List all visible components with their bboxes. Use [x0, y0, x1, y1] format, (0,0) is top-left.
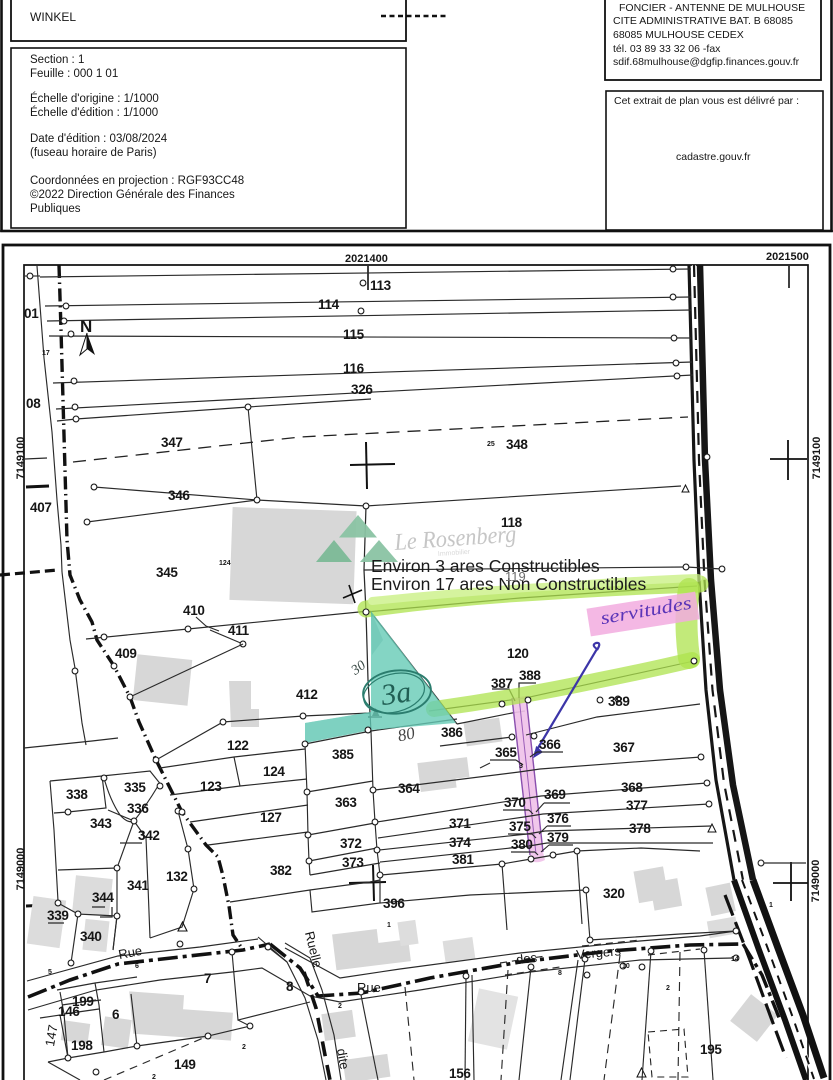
svg-text:6: 6: [112, 1007, 120, 1022]
svg-text:381: 381: [452, 852, 474, 867]
svg-text:8: 8: [558, 970, 562, 977]
svg-text:341: 341: [127, 878, 149, 893]
svg-text:376: 376: [547, 811, 569, 826]
svg-text:335: 335: [124, 780, 146, 795]
svg-text:115: 115: [343, 327, 365, 342]
svg-text:tél. 03 89 33 32 06 -fax: tél. 03 89 33 32 06 -fax: [613, 43, 721, 55]
svg-text:348: 348: [506, 437, 528, 452]
svg-text:7149100: 7149100: [811, 437, 823, 480]
svg-text:118: 118: [501, 515, 523, 530]
svg-text:CITE ADMINISTRATIVE BAT. B 6: CITE ADMINISTRATIVE BAT. B 68085: [613, 15, 793, 27]
svg-text:336: 336: [127, 801, 149, 816]
svg-text:Échelle d'édition : 1/1000: Échelle d'édition : 1/1000: [30, 106, 158, 119]
svg-text:des: des: [515, 950, 538, 968]
svg-text:364: 364: [398, 781, 420, 796]
svg-text:396: 396: [383, 896, 405, 911]
svg-text:25: 25: [487, 441, 495, 448]
svg-text:369: 369: [544, 787, 566, 802]
svg-text:2: 2: [666, 985, 670, 992]
svg-text:387: 387: [491, 676, 513, 691]
svg-text:116: 116: [343, 361, 365, 376]
svg-text:124: 124: [263, 764, 285, 779]
svg-text:339: 339: [47, 908, 69, 923]
svg-text:198: 198: [71, 1038, 93, 1053]
svg-text:342: 342: [138, 828, 160, 843]
svg-text:N: N: [80, 317, 92, 336]
svg-text:388: 388: [519, 668, 541, 683]
svg-text:119: 119: [505, 569, 526, 584]
svg-text:2021500: 2021500: [766, 251, 809, 263]
svg-text:Cet extrait de plan vous est d: Cet extrait de plan vous est délivré par…: [614, 95, 799, 107]
svg-text:17: 17: [42, 350, 50, 357]
svg-text:373: 373: [342, 855, 364, 870]
svg-text:374: 374: [449, 835, 471, 850]
svg-text:372: 372: [340, 836, 362, 851]
svg-text:340: 340: [80, 929, 102, 944]
svg-text:326: 326: [351, 382, 373, 397]
svg-text:368: 368: [621, 780, 643, 795]
svg-text:1: 1: [769, 902, 773, 909]
svg-text:379: 379: [547, 830, 569, 845]
svg-text:367: 367: [613, 740, 635, 755]
svg-text:407: 407: [30, 500, 52, 515]
svg-text:2: 2: [242, 1044, 246, 1051]
svg-text:3: 3: [519, 763, 523, 770]
svg-text:320: 320: [603, 886, 625, 901]
svg-text:14: 14: [731, 956, 739, 963]
svg-text:cadastre.gouv.fr: cadastre.gouv.fr: [676, 151, 751, 163]
svg-text:08: 08: [26, 396, 41, 411]
svg-text:389: 389: [608, 694, 630, 709]
svg-text:124: 124: [219, 560, 231, 567]
svg-text:6: 6: [135, 963, 139, 970]
svg-text:338: 338: [66, 787, 88, 802]
svg-text:Section : 1: Section : 1: [30, 54, 84, 66]
svg-text:68085 MULHOUSE CEDEX: 68085 MULHOUSE CEDEX: [613, 29, 744, 41]
svg-text:3a: 3a: [378, 675, 413, 712]
svg-text:113: 113: [370, 278, 392, 293]
svg-text:Rue: Rue: [357, 980, 381, 995]
svg-text:7: 7: [204, 971, 211, 986]
svg-text:Date d'édition : 03/08/2024: Date d'édition : 03/08/2024: [30, 133, 168, 145]
svg-text:195: 195: [700, 1042, 722, 1057]
svg-text:365: 365: [495, 745, 517, 760]
svg-text:7149000: 7149000: [810, 860, 822, 903]
svg-text:378: 378: [629, 821, 651, 836]
svg-text:382: 382: [270, 863, 292, 878]
svg-text:366: 366: [539, 737, 561, 752]
svg-text:343: 343: [90, 816, 112, 831]
svg-text:371: 371: [449, 816, 471, 831]
svg-text:412: 412: [296, 687, 318, 702]
svg-text:123: 123: [200, 779, 222, 794]
svg-text:FONCIER - ANTENNE DE MULHOUSE: FONCIER - ANTENNE DE MULHOUSE: [619, 2, 805, 14]
svg-text:Environ 3 ares Constructibles: Environ 3 ares Constructibles: [371, 556, 600, 576]
svg-text:347: 347: [161, 435, 183, 450]
svg-text:385: 385: [332, 747, 354, 762]
svg-text:386: 386: [441, 725, 463, 740]
svg-text:©2022 Direction Générale des F: ©2022 Direction Générale des Finances: [30, 189, 235, 201]
svg-text:370: 370: [504, 795, 526, 810]
svg-text:7149100: 7149100: [15, 437, 27, 480]
svg-text:156: 156: [449, 1066, 471, 1080]
svg-text:8: 8: [286, 979, 294, 994]
svg-text:375: 375: [509, 819, 531, 834]
svg-text:146: 146: [58, 1004, 80, 1019]
svg-text:410: 410: [183, 603, 205, 618]
svg-text:344: 344: [92, 890, 114, 905]
svg-text:380: 380: [511, 837, 533, 852]
svg-text:Publiques: Publiques: [30, 203, 81, 215]
svg-text:411: 411: [228, 623, 250, 638]
svg-text:(fuseau horaire de Paris): (fuseau horaire de Paris): [30, 147, 157, 159]
svg-text:345: 345: [156, 565, 178, 580]
svg-text:149: 149: [174, 1057, 196, 1072]
svg-text:127: 127: [260, 810, 282, 825]
svg-text:132: 132: [166, 869, 188, 884]
svg-text:01: 01: [24, 306, 39, 321]
svg-text:10: 10: [622, 963, 630, 970]
svg-text:2021400: 2021400: [345, 253, 388, 265]
svg-text:409: 409: [115, 646, 137, 661]
svg-text:114: 114: [318, 297, 340, 312]
svg-text:5: 5: [48, 969, 52, 976]
svg-text:Feuille : 000 1 01: Feuille : 000 1 01: [30, 68, 118, 80]
svg-text:Coordonnées en projection : RG: Coordonnées en projection : RGF93CC48: [30, 175, 244, 187]
svg-text:Échelle d'origine : 1/1000: Échelle d'origine : 1/1000: [30, 92, 159, 105]
svg-text:363: 363: [335, 795, 357, 810]
svg-text:2: 2: [152, 1074, 156, 1080]
svg-text:7149000: 7149000: [15, 848, 27, 891]
svg-text:1: 1: [387, 922, 391, 929]
svg-text:120: 120: [507, 646, 529, 661]
svg-text:2: 2: [338, 1003, 342, 1010]
svg-text:346: 346: [168, 488, 190, 503]
svg-text:377: 377: [626, 798, 648, 813]
svg-text:sdif.68mulhouse@dgfip.finances: sdif.68mulhouse@dgfip.finances.gouv.fr: [613, 56, 800, 68]
svg-text:WINKEL: WINKEL: [30, 10, 76, 24]
svg-text:122: 122: [227, 738, 249, 753]
